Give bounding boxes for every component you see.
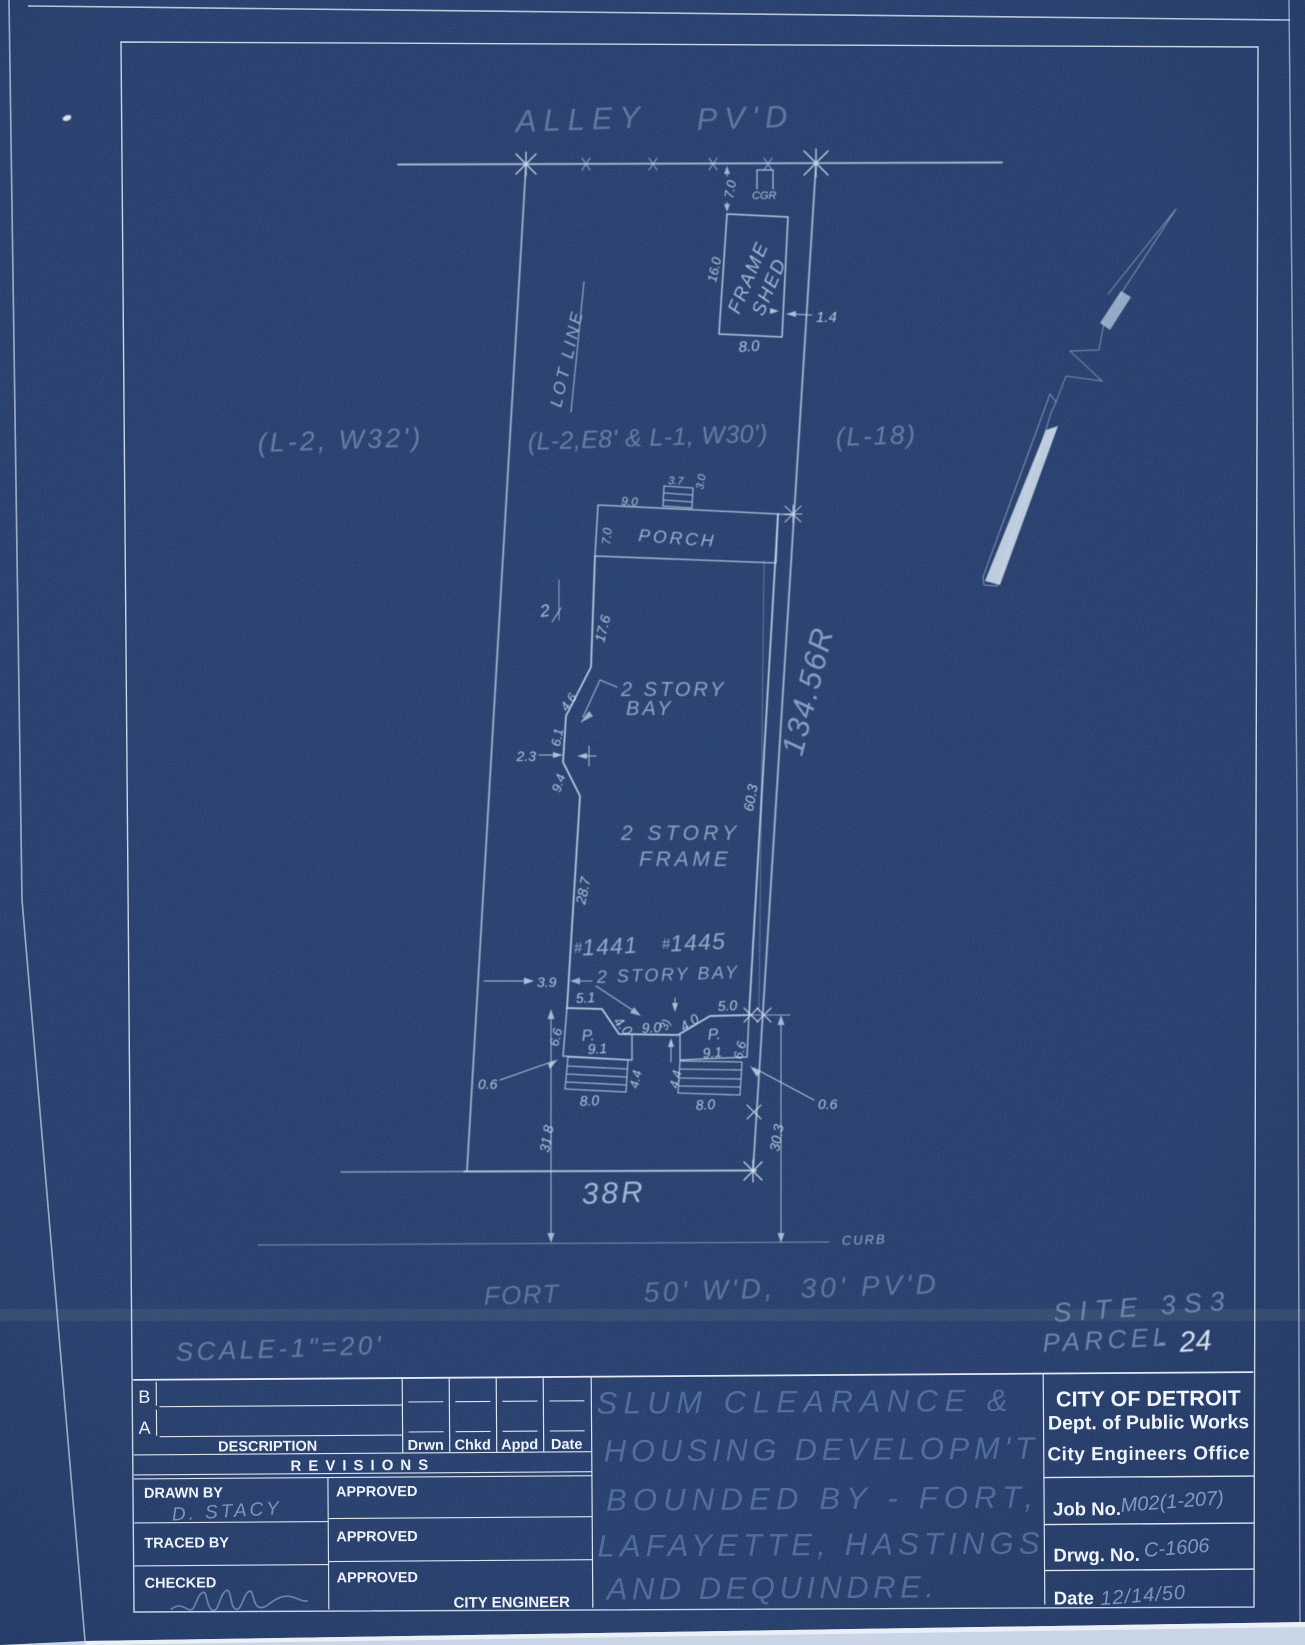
svg-text:Appd: Appd <box>501 1437 538 1453</box>
svg-text:Job No.: Job No. <box>1053 1498 1121 1519</box>
svg-text:DESCRIPTION: DESCRIPTION <box>218 1439 317 1456</box>
svg-text:9.0: 9.0 <box>621 494 639 509</box>
svg-text:Drwn: Drwn <box>408 1438 444 1454</box>
svg-text:CURB: CURB <box>842 1231 887 1248</box>
svg-text:REVISIONS: REVISIONS <box>290 1457 435 1475</box>
svg-text:2 STORY: 2 STORY <box>620 822 741 845</box>
svg-text:P.: P. <box>707 1026 721 1044</box>
svg-text:APPROVED: APPROVED <box>337 1570 419 1587</box>
svg-text:BAY: BAY <box>626 698 674 720</box>
svg-text:BOUNDED BY - FORT,: BOUNDED BY - FORT, <box>606 1480 1039 1518</box>
svg-text:FRAME: FRAME <box>639 848 732 871</box>
svg-text:0.6: 0.6 <box>478 1076 498 1092</box>
svg-text:#1445: #1445 <box>661 928 727 957</box>
svg-text:3.9: 3.9 <box>537 974 557 990</box>
svg-text:9.1: 9.1 <box>702 1044 723 1061</box>
svg-text:24: 24 <box>1177 1325 1212 1359</box>
svg-text:#1441: #1441 <box>573 932 639 961</box>
svg-text:ALLEY: ALLEY <box>513 99 648 139</box>
svg-text:APPROVED: APPROVED <box>336 1484 418 1501</box>
svg-text:TRACED BY: TRACED BY <box>144 1535 229 1552</box>
svg-text:Date: Date <box>551 1437 583 1453</box>
svg-text:6.1: 6.1 <box>548 727 566 747</box>
svg-text:A: A <box>138 1418 150 1438</box>
svg-text:3.7: 3.7 <box>668 475 685 488</box>
svg-text:PV'D: PV'D <box>696 99 795 137</box>
svg-text:2.3: 2.3 <box>516 748 537 764</box>
svg-text:7.0: 7.0 <box>599 527 615 545</box>
svg-text:Dept. of Public Works: Dept. of Public Works <box>1048 1411 1249 1434</box>
svg-text:(L-18): (L-18) <box>835 419 917 452</box>
svg-text:DRAWN BY: DRAWN BY <box>144 1485 223 1502</box>
svg-text:CITY ENGINEER: CITY ENGINEER <box>454 1594 571 1612</box>
svg-text:Date: Date <box>1054 1587 1094 1608</box>
svg-text:SLUM CLEARANCE &: SLUM CLEARANCE & <box>596 1383 1014 1421</box>
svg-text:AND DEQUINDRE.: AND DEQUINDRE. <box>605 1569 939 1606</box>
svg-text:5.1: 5.1 <box>575 989 595 1006</box>
svg-text:0.6: 0.6 <box>818 1096 838 1112</box>
svg-text:8.0: 8.0 <box>738 338 761 356</box>
svg-text:8.0: 8.0 <box>695 1096 715 1113</box>
svg-text:CITY OF DETROIT: CITY OF DETROIT <box>1056 1386 1241 1411</box>
svg-text:Chkd: Chkd <box>455 1437 491 1453</box>
svg-text:-: - <box>1157 1329 1166 1356</box>
svg-text:City Engineers Office: City Engineers Office <box>1047 1443 1250 1465</box>
svg-text:30' PV'D: 30' PV'D <box>800 1268 940 1304</box>
svg-text:HOUSING DEVELOPM'T: HOUSING DEVELOPM'T <box>604 1431 1039 1469</box>
svg-text:38R: 38R <box>581 1176 646 1211</box>
svg-text:(L-2, W32'): (L-2, W32') <box>257 422 424 458</box>
svg-text:8.0: 8.0 <box>579 1092 599 1109</box>
svg-text:FORT: FORT <box>483 1278 561 1311</box>
svg-text:9.1: 9.1 <box>587 1040 607 1057</box>
svg-text:APPROVED: APPROVED <box>336 1529 418 1546</box>
svg-text:B: B <box>138 1387 150 1407</box>
svg-text:5.0: 5.0 <box>717 997 737 1014</box>
svg-text:CGR: CGR <box>752 190 777 202</box>
svg-text:LAFAYETTE, HASTINGS: LAFAYETTE, HASTINGS <box>597 1526 1045 1564</box>
svg-text:CHECKED: CHECKED <box>145 1575 217 1592</box>
svg-text:50' W'D,: 50' W'D, <box>643 1272 776 1308</box>
svg-text:Drwg. No.: Drwg. No. <box>1053 1544 1139 1566</box>
svg-text:1.4: 1.4 <box>816 309 837 326</box>
